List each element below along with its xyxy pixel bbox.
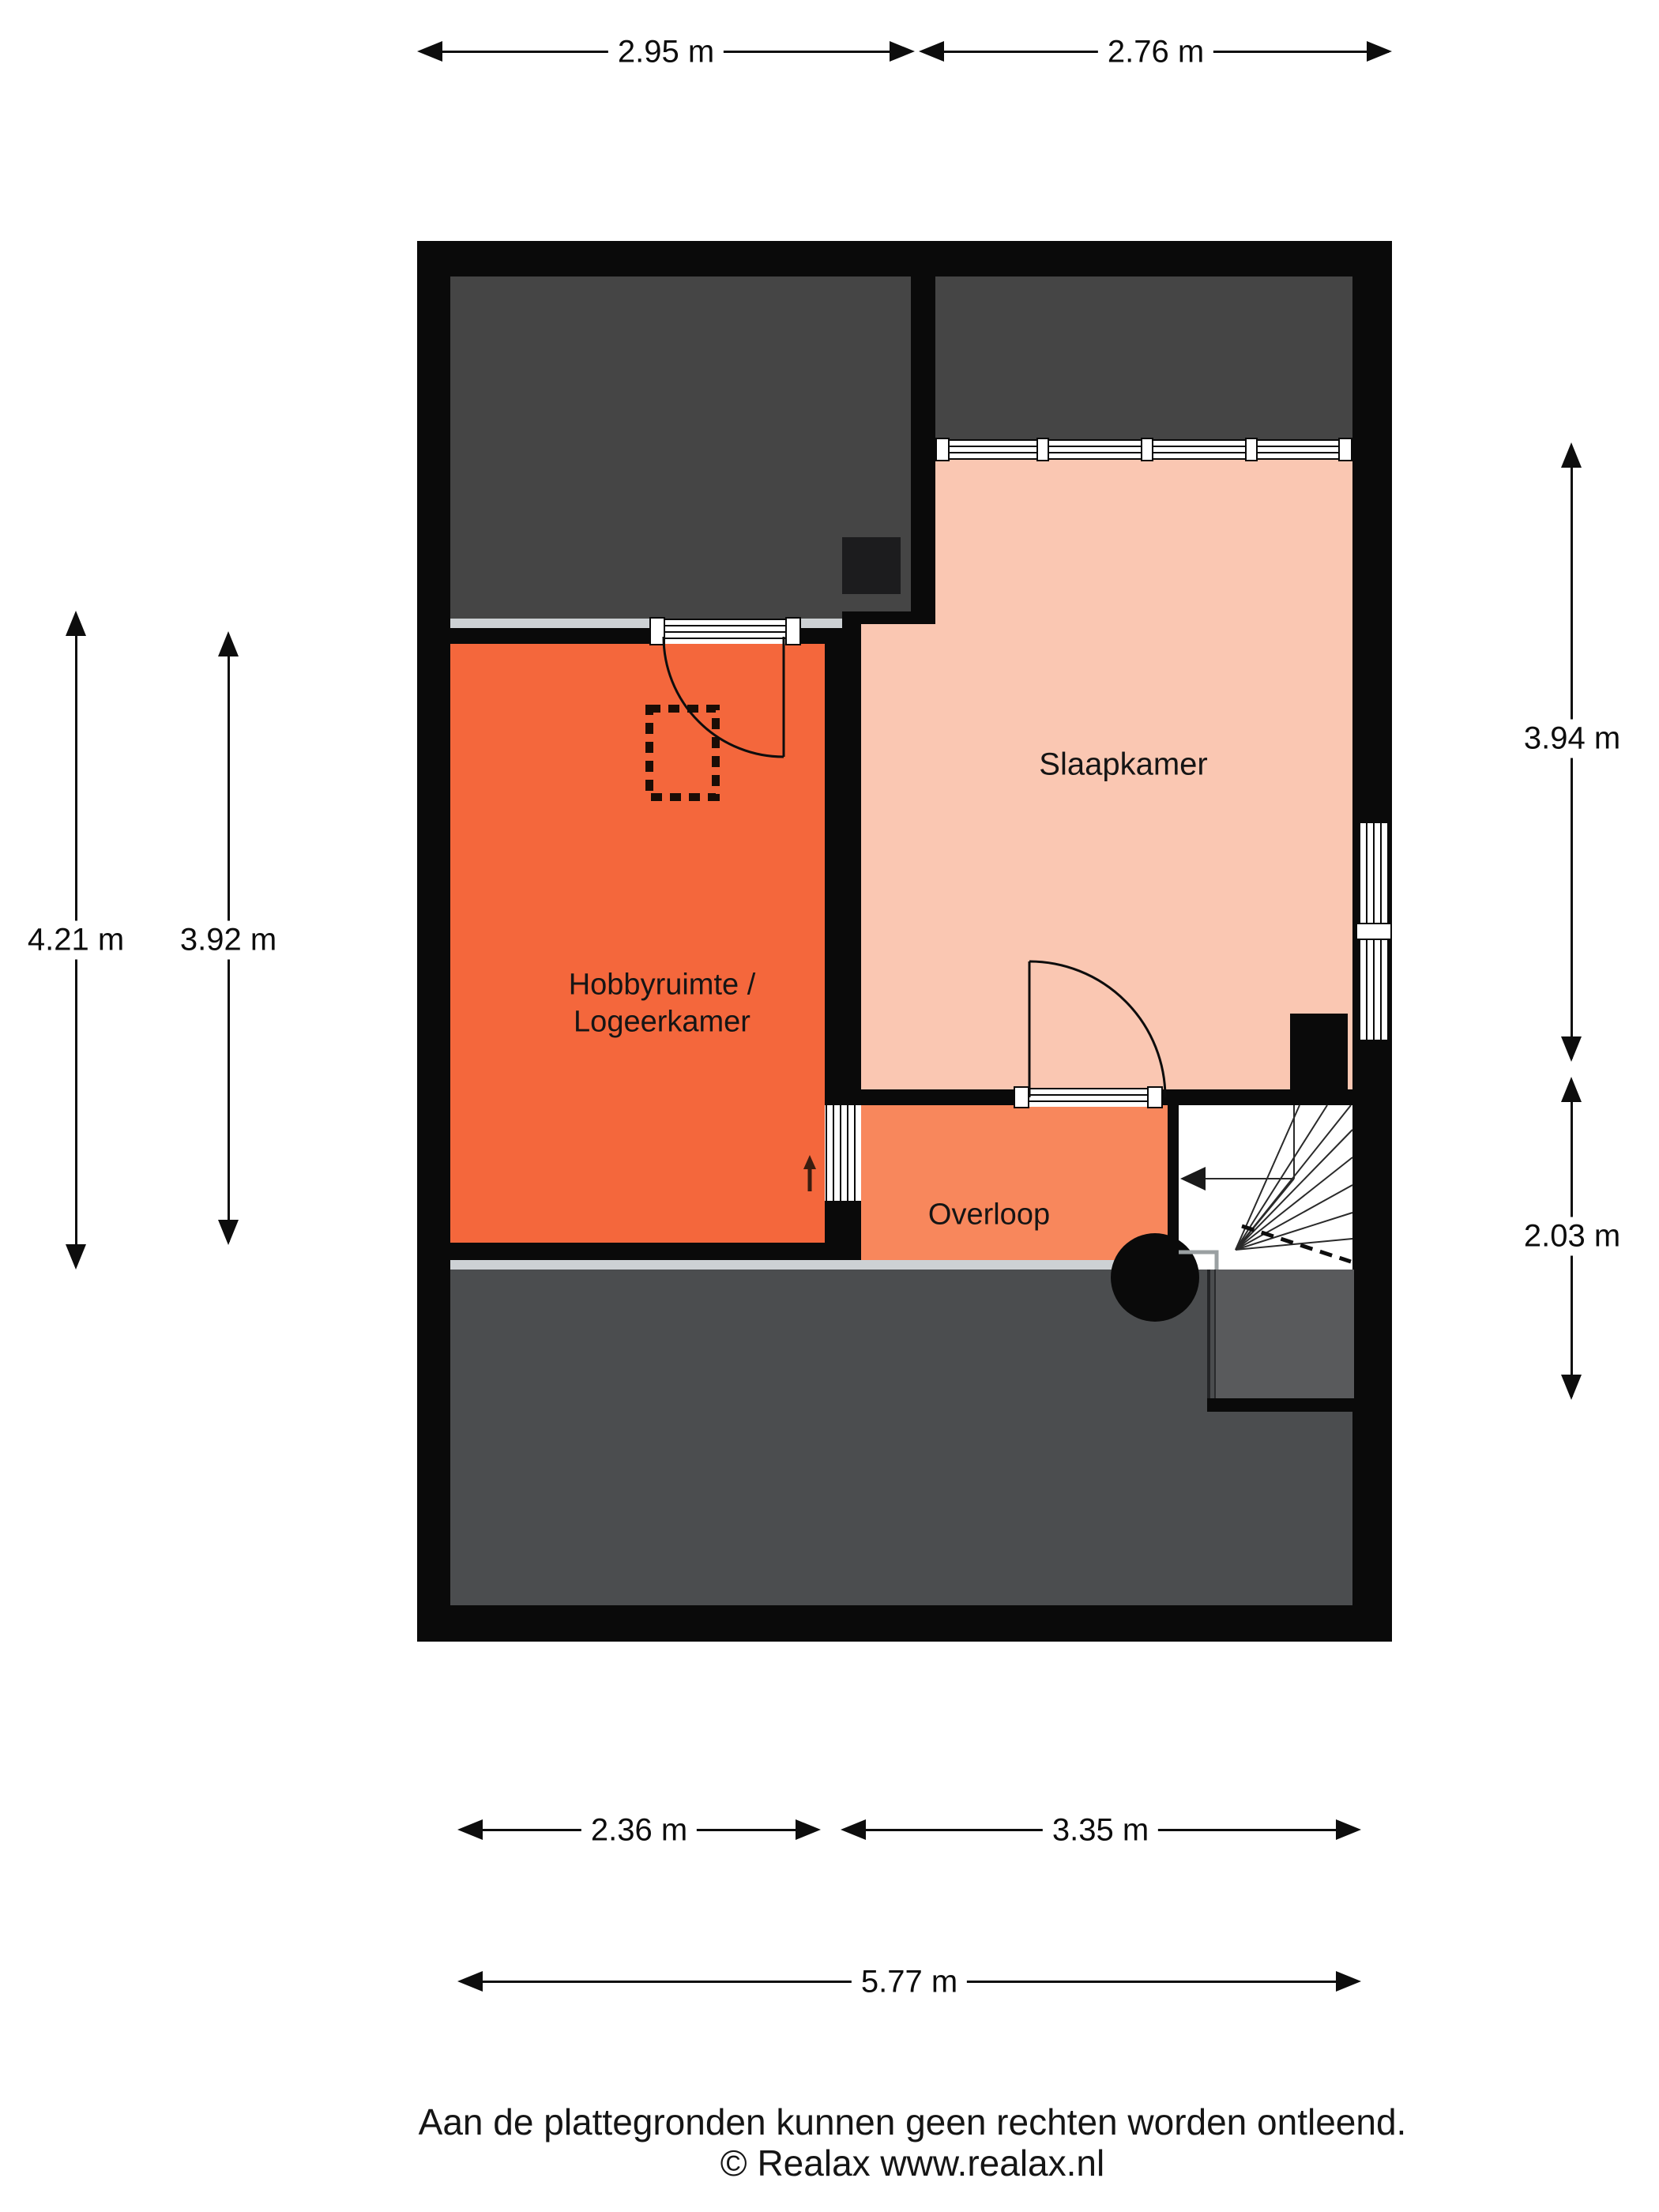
dim-arrowhead-icon (218, 631, 239, 656)
skylight-dashed-rect (649, 709, 716, 797)
room-label-bedroom: Slaapkamer (1039, 747, 1207, 783)
stair-treads (1203, 1105, 1352, 1250)
dim-top-left-label: 2.95 m (608, 33, 724, 72)
dim-arrowhead-icon (1561, 1077, 1582, 1102)
room-label-hobby-line2: Logeerkamer (574, 1006, 750, 1040)
dim-arrowhead-icon (66, 611, 86, 636)
dim-arrowhead-icon (890, 41, 915, 62)
floorplan-canvas: Slaapkamer Hobbyruimte / Logeerkamer Ove… (0, 0, 1659, 2212)
dim-arrowhead-icon (1336, 1971, 1361, 1992)
room-label-hobby-line1: Hobbyruimte / (569, 969, 756, 1003)
door-swing-bedroom (1029, 961, 1165, 1097)
dim-arrowhead-icon (66, 1244, 86, 1270)
dim-arrowhead-icon (1561, 442, 1582, 468)
dim-arrowhead-icon (1336, 1819, 1361, 1840)
footer-copyright: © Realax www.realax.nl (720, 2142, 1104, 2184)
dim-arrowhead-icon (1561, 1375, 1582, 1400)
dim-arrowhead-icon (919, 41, 944, 62)
dim-right-upper-label: 3.94 m (1514, 720, 1630, 758)
dim-arrowhead-icon (218, 1220, 239, 1245)
dim-arrowhead-icon (457, 1971, 483, 1992)
stair-direction-arrow-icon (1180, 1167, 1206, 1191)
room-label-landing: Overloop (928, 1198, 1050, 1232)
dim-arrowhead-icon (1561, 1036, 1582, 1062)
dim-left-inner-label: 3.92 m (171, 921, 286, 960)
dim-arrowhead-icon (1367, 41, 1392, 62)
door-swing-hobby (664, 637, 784, 757)
plan-linework (0, 0, 1659, 2212)
dim-arrowhead-icon (417, 41, 442, 62)
footer-disclaimer: Aan de plattegronden kunnen geen rechten… (419, 2101, 1407, 2143)
dim-bottom-right-label: 3.35 m (1043, 1811, 1158, 1850)
dim-arrowhead-icon (841, 1819, 866, 1840)
dim-left-outer-label: 4.21 m (18, 921, 134, 960)
dim-right-lower-label: 2.03 m (1514, 1217, 1630, 1256)
dim-arrowhead-icon (457, 1819, 483, 1840)
dim-arrowhead-icon (796, 1819, 821, 1840)
stair-step-edge (1179, 1252, 1217, 1270)
dim-bottom-left-label: 2.36 m (581, 1811, 697, 1850)
up-arrow-icon (803, 1155, 816, 1191)
dim-top-right-label: 2.76 m (1098, 33, 1213, 72)
dim-bottom-total-label: 5.77 m (852, 1963, 967, 2002)
